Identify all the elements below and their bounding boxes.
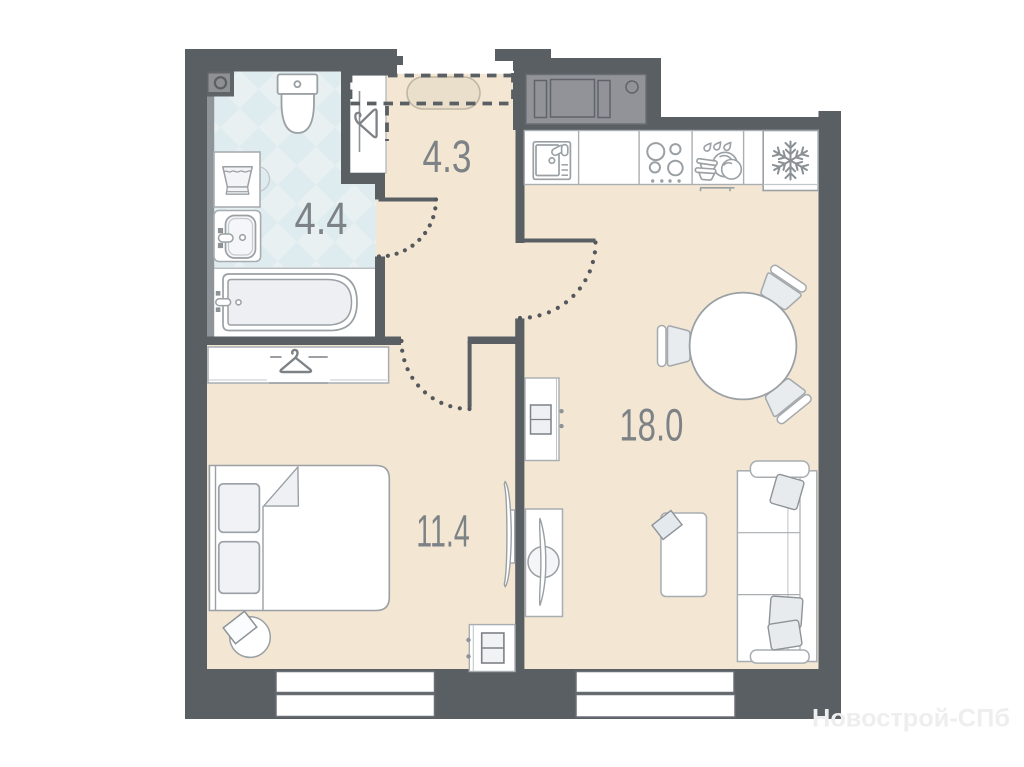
svg-text:18.0: 18.0 (619, 399, 683, 450)
svg-text:11.4: 11.4 (416, 506, 470, 557)
svg-text:Новострой-СПб: Новострой-СПб (812, 705, 1010, 733)
svg-text:4.4: 4.4 (295, 193, 348, 244)
svg-text:4.3: 4.3 (423, 131, 472, 182)
